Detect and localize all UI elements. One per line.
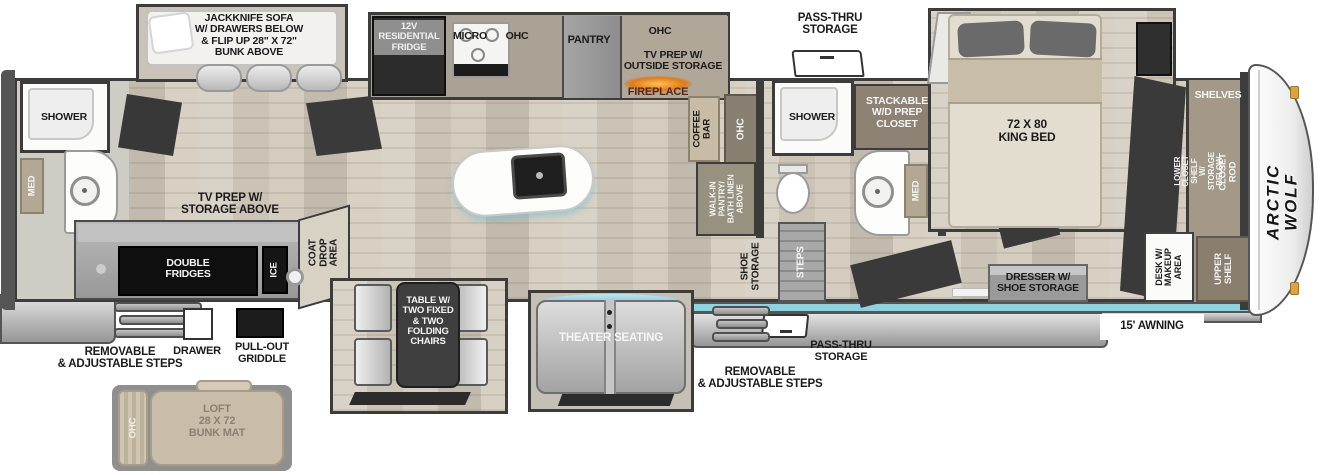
king-bed-label: 72 X 80 KING BED — [982, 118, 1072, 144]
mid-toilet — [776, 172, 810, 214]
entry-step — [712, 306, 770, 316]
theater-mat — [558, 394, 674, 406]
body-skirt-right — [688, 312, 1108, 348]
cupholder — [607, 310, 612, 315]
tv-prep-label: TV PREP W/ STORAGE ABOVE — [148, 192, 312, 217]
dinette-chair — [354, 338, 392, 386]
micro-label: MICRO — [444, 31, 496, 42]
mid-med-label: MED — [911, 181, 921, 202]
ohc1-label: OHC — [496, 31, 538, 42]
coffee-bar-label: COFFEE BAR — [693, 110, 713, 147]
upper-shelf-label-area: UPPER SHELF — [1194, 236, 1254, 302]
ice-label-area: ICE — [258, 246, 292, 294]
rear-bath-tv — [118, 94, 182, 156]
rear-med-label: MED — [27, 176, 37, 197]
bedroom-tv — [1136, 22, 1172, 76]
cupholder — [607, 324, 612, 329]
dinette-mat — [349, 392, 471, 405]
hatch-handle-bottom — [780, 330, 792, 333]
sofa-bolster — [246, 64, 292, 92]
pass-thru-top-label: PASS-THRU STORAGE — [768, 12, 892, 37]
loft-ohc-label: OHC — [128, 418, 138, 439]
rear-shower-label: SHOWER — [20, 112, 108, 123]
dresser-label: DRESSER W/ SHOE STORAGE — [986, 272, 1090, 295]
rear-sink-drain — [82, 188, 87, 193]
hatch-handle-top — [820, 56, 834, 59]
pull-out-griddle — [236, 308, 284, 338]
entry-step — [716, 319, 768, 329]
bed-blanket-fold — [948, 58, 1102, 104]
fridge-label: 12V RESIDENTIAL FRIDGE — [374, 20, 444, 55]
steps-label-area: STEPS — [776, 224, 828, 300]
pass-thru-hatch-top — [791, 50, 864, 77]
mid-sink-drain — [875, 189, 880, 194]
desk-label: DESK W/ MAKEUP AREA — [1155, 248, 1183, 286]
pantry-cabinet — [562, 16, 620, 98]
oven-front — [454, 64, 508, 76]
coat-drop-label: COAT DROP AREA — [308, 227, 340, 279]
bed-pillow — [1029, 20, 1097, 57]
pass-thru-bottom-label: PASS-THRU STORAGE — [786, 340, 896, 364]
counter-top-edge — [78, 224, 298, 242]
griddle-label: PULL-OUT GRIDDLE — [222, 342, 302, 366]
sofa-bolster — [296, 64, 342, 92]
loft-ohc-label-area: OHC — [116, 390, 150, 466]
tv-prep-outside-label: TV PREP W/ OUTSIDE STORAGE — [618, 50, 728, 73]
double-fridges-label: DOUBLE FRIDGES — [124, 258, 252, 281]
coffee-bar-label-area: COFFEE BAR — [684, 96, 722, 162]
upper-shelf-label: UPPER SHELF — [1214, 253, 1234, 285]
steps-right-label: REMOVABLE & ADJUSTABLE STEPS — [672, 366, 848, 391]
floorplan-diagram: PASS-THRU STORAGE 15' AWNING REMOVABLE &… — [0, 0, 1320, 475]
mid-med-label-area: MED — [902, 164, 930, 218]
closet-rod-label-area: CLOSET ROD — [1214, 122, 1244, 222]
rear-toilet-lid — [96, 264, 106, 274]
ohc2-label: OHC — [638, 26, 682, 37]
clearance-light — [1290, 282, 1299, 295]
brand-logo: ARCTIC WOLF — [1264, 164, 1300, 240]
ice-label: ICE — [270, 262, 280, 277]
bed-pillow — [957, 20, 1025, 57]
table-label: TABLE W/ TWO FIXED & TWO FOLDING CHAIRS — [398, 296, 458, 347]
steps-label: STEPS — [797, 246, 808, 278]
dinette-chair — [354, 284, 392, 332]
pantry-label: PANTRY — [554, 35, 624, 47]
coat-drop-label-area: COAT DROP AREA — [298, 208, 350, 298]
loft-label: LOFT 28 X 72 BUNK MAT — [154, 404, 280, 440]
mid-shower-label: SHOWER — [772, 112, 852, 123]
shoe-storage-label-area: SHOE STORAGE — [734, 232, 768, 300]
rear-cap-wall — [1, 70, 15, 310]
desk-label-area: DESK W/ MAKEUP AREA — [1142, 232, 1196, 302]
stackable-label: STACKABLE W/D PREP CLOSET — [854, 96, 940, 130]
shelves-label: SHELVES — [1186, 90, 1250, 101]
burner — [471, 48, 485, 62]
sofa-bolster — [196, 64, 242, 92]
walk-in-label: WALK-IN PANTRY/ BATH LINEN ABOVE — [708, 175, 744, 224]
sofa-label: JACKKNIFE SOFA W/ DRAWERS BELOW & FLIP U… — [158, 13, 340, 58]
closet-rod-label: CLOSET ROD — [1219, 153, 1239, 190]
brand-logo-area: ARCTIC WOLF — [1254, 96, 1310, 308]
theater-label: THEATER SEATING — [532, 332, 690, 344]
living-tv — [306, 96, 382, 156]
island-faucet — [536, 172, 543, 179]
shoe-storage-label: SHOE STORAGE — [741, 242, 762, 290]
accent-stripe — [688, 302, 1262, 313]
ohc-coffee-label: OHC — [737, 118, 748, 140]
awning-label: 15' AWNING — [1100, 320, 1204, 332]
clearance-light — [1290, 86, 1299, 99]
rear-med-label-area: MED — [18, 158, 46, 214]
entry-step — [712, 332, 770, 342]
ohc-coffee-label-area: OHC — [722, 94, 762, 164]
exterior-drawer — [183, 308, 213, 340]
walk-in-label-area: WALK-IN PANTRY/ BATH LINEN ABOVE — [694, 160, 758, 238]
lower-closet-label-area: LOWER CLOSET SHELF W/ STORAGE BELOW — [1184, 110, 1214, 232]
